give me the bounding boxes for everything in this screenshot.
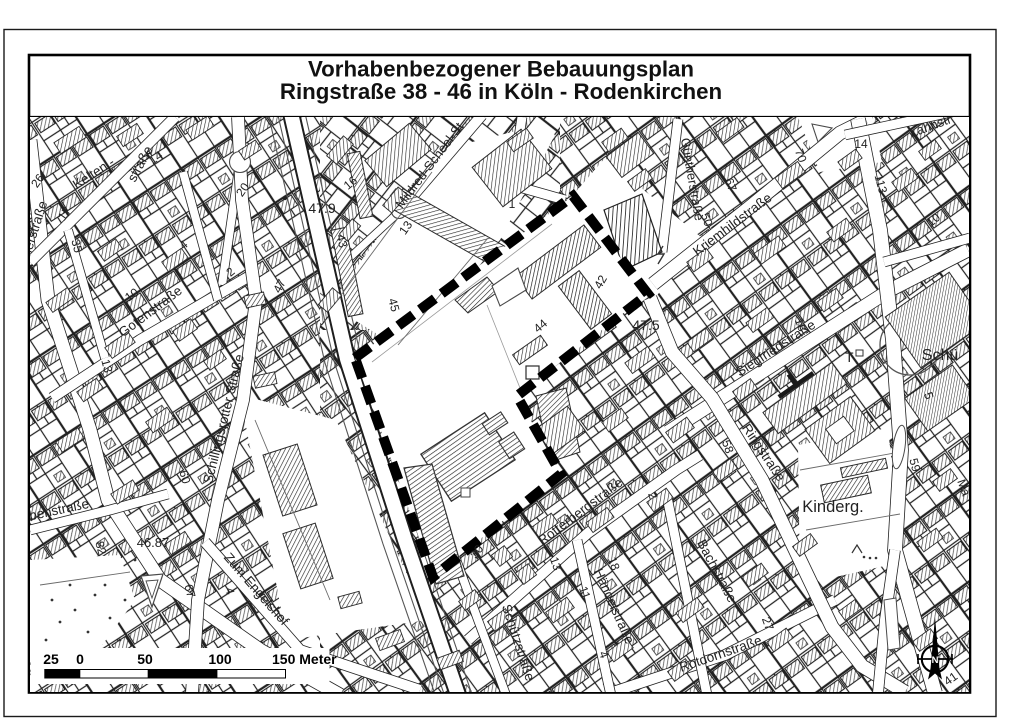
svg-text:1: 1 [509, 197, 516, 211]
svg-text:0: 0 [76, 651, 84, 667]
svg-text:50: 50 [137, 651, 153, 667]
svg-text:Schü: Schü [922, 347, 958, 364]
svg-text:47.5: 47.5 [632, 317, 659, 333]
svg-text:100: 100 [208, 651, 232, 667]
svg-text:N: N [932, 655, 939, 666]
svg-text:Kinderg.: Kinderg. [802, 498, 863, 516]
svg-text:150 Meter: 150 Meter [272, 651, 337, 667]
svg-text:47.9: 47.9 [308, 200, 335, 216]
svg-text:Vorhabenbezogener Bebauungspla: Vorhabenbezogener Bebauungsplan [308, 57, 694, 82]
svg-text:46.87: 46.87 [137, 535, 170, 550]
svg-text:25: 25 [43, 651, 59, 667]
svg-text:T: T [845, 349, 854, 365]
svg-text:Ringstraße 38 - 46 in Köln - R: Ringstraße 38 - 46 in Köln - Rodenkirche… [280, 79, 722, 104]
svg-text:14: 14 [854, 137, 868, 151]
